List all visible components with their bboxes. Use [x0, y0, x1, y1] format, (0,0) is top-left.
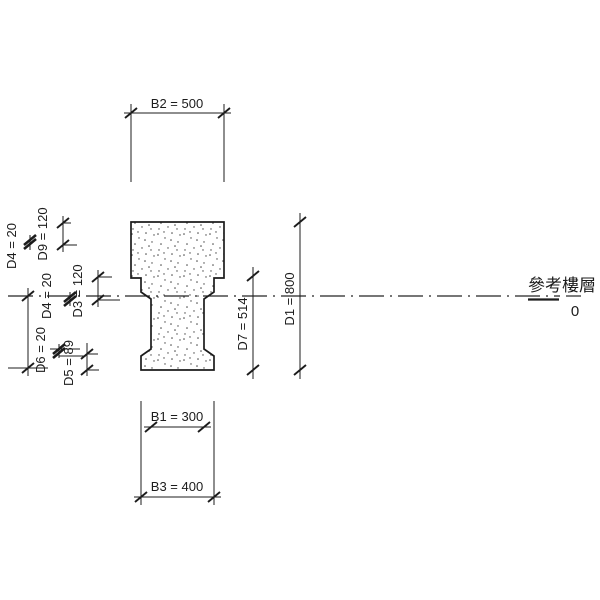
d9-leaders [63, 223, 77, 245]
d3-label[interactable]: D3 = 120 [70, 264, 85, 317]
level-elevation[interactable]: 0 [571, 303, 579, 320]
dim-d3: D3 = 120 [70, 264, 120, 317]
level-annotation: 參考樓層 0 [528, 276, 596, 320]
b2-extension-lines [131, 104, 224, 182]
d4-mid-label[interactable]: D4 = 20 [39, 273, 54, 319]
d1-label[interactable]: D1 = 800 [282, 272, 297, 325]
d9-label[interactable]: D9 = 120 [35, 207, 50, 260]
dim-b2: B2 = 500 [124, 96, 231, 182]
drawing-canvas[interactable]: B2 = 500 B1 = 300 B3 = 400 D7 = 514 D1 =… [0, 0, 600, 600]
level-name[interactable]: 參考樓層 [528, 276, 596, 296]
section-drawing: B2 = 500 B1 = 300 B3 = 400 D7 = 514 D1 =… [0, 0, 600, 600]
b2-label[interactable]: B2 = 500 [151, 96, 203, 111]
dim-b1: B1 = 300 [144, 409, 211, 432]
d7-label[interactable]: D7 = 514 [235, 297, 250, 350]
dim-d7: D7 = 514 [235, 267, 259, 379]
b1-label[interactable]: B1 = 300 [151, 409, 203, 424]
dim-d5: D5 = 89 [61, 340, 99, 386]
d6-label[interactable]: D6 = 20 [33, 327, 48, 373]
b3-label[interactable]: B3 = 400 [151, 479, 203, 494]
d5-label[interactable]: D5 = 89 [61, 340, 76, 386]
d4-top-label[interactable]: D4 = 20 [4, 223, 19, 269]
dim-d4-top: D4 = 20 [4, 223, 36, 269]
dim-d6: D6 = 20 [33, 327, 86, 373]
dim-d9: D9 = 120 [35, 207, 77, 260]
clipped-dim-label[interactable]: D2 = 400 [0, 305, 3, 358]
